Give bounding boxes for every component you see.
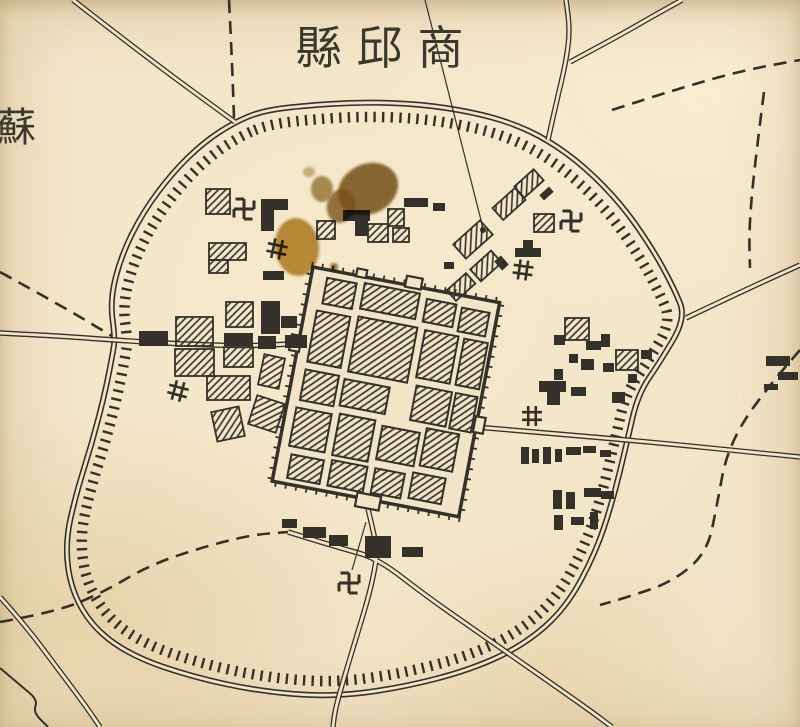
solid-building-62: [566, 492, 575, 509]
city-group: [263, 257, 510, 527]
paper-stain-5: [330, 263, 338, 271]
historical-map-stage: 縣邱商 蘇: [0, 0, 800, 727]
city-block-3: [458, 308, 490, 337]
solid-building-46: [603, 363, 614, 372]
hatched-building-32: [211, 406, 245, 441]
map-title: 縣邱商: [296, 21, 479, 75]
well-symbol-1: [166, 379, 190, 403]
solid-building-50: [571, 387, 586, 396]
solid-building-12: [433, 203, 445, 211]
road-core-3: [570, 0, 682, 62]
solid-building-41: [554, 335, 565, 345]
solid-building-36: [224, 333, 253, 346]
city-block-2: [423, 299, 457, 327]
hatched-building-16: [534, 214, 554, 232]
hatched-building-18: [470, 251, 502, 282]
hatched-building-13: [393, 228, 409, 242]
solid-building-61: [553, 490, 562, 509]
hatched-building-39: [565, 318, 589, 340]
hatched-building-27: [226, 302, 253, 327]
solid-building-75: [764, 384, 778, 390]
city-block-18: [371, 468, 405, 498]
hatched-building-30: [258, 354, 285, 389]
solid-building-1: [261, 199, 288, 210]
city-block-5: [348, 316, 417, 382]
paper-stain-2: [311, 176, 333, 202]
hatched-building-25: [176, 317, 213, 346]
city-gate-3: [473, 416, 486, 434]
solid-building-45: [581, 359, 594, 370]
hatched-building-9: [368, 224, 388, 242]
city-block-8: [300, 369, 339, 406]
solid-building-53: [641, 350, 652, 359]
solid-building-56: [543, 447, 551, 464]
solid-building-21: [515, 248, 541, 257]
solid-building-60: [600, 450, 611, 457]
solid-building-73: [766, 356, 790, 366]
hatched-building-40: [616, 350, 638, 370]
solid-building-54: [521, 447, 529, 464]
hatched-building-28: [224, 347, 253, 367]
paper-stain-3: [303, 167, 315, 177]
hatched-building-8: [317, 221, 335, 239]
stains-layer: [272, 153, 407, 278]
city-block-12: [289, 407, 332, 452]
solid-building-66: [571, 517, 584, 525]
swastika-temple-symbol-1: [561, 211, 581, 231]
city-block-17: [327, 460, 367, 492]
hatched-building-0: [206, 189, 230, 214]
dashed-road-13: [0, 532, 288, 622]
leader-end-dot: [480, 227, 486, 233]
solid-building-2: [261, 210, 274, 231]
solid-building-5: [263, 271, 284, 280]
solid-building-74: [778, 372, 798, 380]
stream-line-15: [0, 668, 48, 727]
solid-building-7: [355, 221, 368, 236]
city-block-19: [408, 472, 445, 504]
city-gate-1: [356, 268, 367, 278]
map-canvas: 縣邱商 蘇: [0, 0, 800, 727]
solid-building-43: [601, 334, 610, 347]
well-symbol-3: [522, 406, 542, 426]
hatched-building-17: [453, 220, 492, 258]
solid-building-63: [584, 488, 601, 497]
solid-building-51: [612, 392, 625, 403]
solid-building-42: [586, 341, 601, 350]
dashed-road-4: [612, 60, 800, 110]
hatched-building-29: [207, 376, 250, 400]
road-casing-2: [548, 0, 569, 140]
hatched-building-3: [209, 243, 246, 260]
hatched-building-10: [388, 209, 404, 226]
solid-building-24: [444, 262, 454, 269]
solid-building-67: [590, 512, 598, 529]
dashed-road-5: [749, 92, 764, 268]
hatched-building-26: [175, 349, 214, 376]
city-block-13: [332, 414, 375, 462]
hatched-building-4: [209, 260, 228, 273]
solid-building-57: [555, 449, 562, 462]
solid-building-22: [523, 240, 533, 248]
solid-building-64: [601, 491, 614, 499]
solid-building-47: [554, 369, 563, 380]
road-core-6: [686, 265, 800, 318]
solid-building-68: [282, 519, 297, 528]
dashed-road-8: [0, 272, 112, 336]
solid-building-48: [539, 381, 566, 392]
city-gate-4: [355, 492, 381, 510]
dashed-road-1: [229, 0, 234, 118]
city-block-10: [410, 386, 452, 427]
city-gate-0: [405, 276, 423, 290]
city-block-15: [420, 428, 460, 472]
solid-building-72: [402, 547, 423, 557]
solid-building-69: [303, 527, 326, 538]
solid-building-58: [566, 447, 581, 455]
city-block-14: [376, 426, 420, 467]
solid-building-33: [139, 331, 168, 346]
solid-building-71: [365, 536, 391, 558]
solid-building-55: [532, 449, 539, 463]
solid-building-70: [329, 535, 348, 546]
labels-layer: 縣邱商 蘇: [0, 21, 479, 151]
solid-building-20: [539, 187, 553, 201]
solid-building-11: [404, 198, 428, 207]
solid-building-37: [258, 336, 276, 349]
solid-building-38: [285, 335, 307, 348]
solid-building-35: [281, 316, 297, 328]
city-layer: [263, 257, 510, 527]
solid-building-44: [569, 354, 578, 363]
road-core-0: [73, 0, 235, 122]
swastika-temple-symbol-0: [234, 199, 254, 219]
solid-building-49: [547, 392, 560, 405]
swastika-temple-symbol-2: [339, 573, 359, 593]
solid-building-34: [261, 301, 280, 334]
well-symbol-2: [512, 259, 535, 282]
leader-line-1: [352, 522, 366, 570]
edge-label: 蘇: [0, 105, 36, 151]
solid-building-59: [583, 446, 596, 453]
city-block-16: [287, 454, 324, 484]
solid-building-65: [554, 515, 563, 530]
solid-building-52: [628, 374, 637, 383]
city-block-0: [322, 278, 356, 309]
